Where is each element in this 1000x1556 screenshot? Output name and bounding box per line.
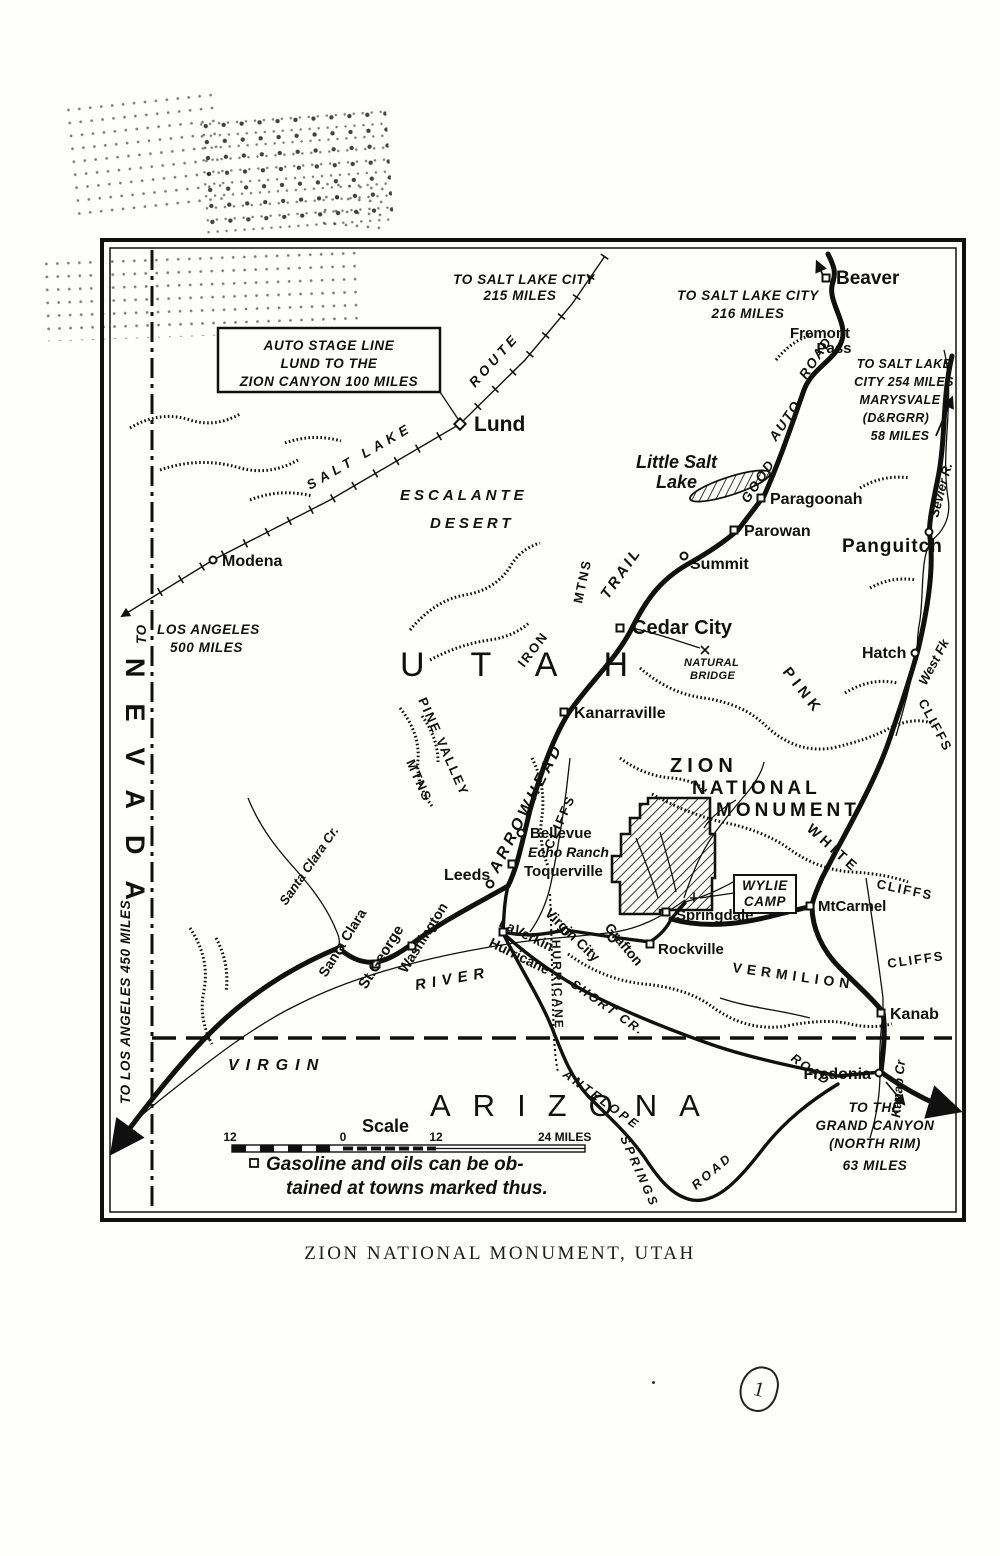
- river-label-virgin-2: RIVER: [414, 964, 492, 994]
- note-slc-216-1: TO SALT LAKE CITY: [677, 288, 820, 303]
- town-label-kanarraville: Kanarraville: [574, 705, 666, 722]
- monument-title-2: NATIONAL: [692, 778, 821, 799]
- town-label-hatch: Hatch: [862, 645, 906, 662]
- note-slc-254-2: CITY 254 MILES: [854, 375, 954, 389]
- town-label-mt-carmel: MtCarmel: [818, 898, 886, 915]
- illegible-stamp-marks: [318, 177, 389, 239]
- town-label-rockville: Rockville: [658, 941, 724, 958]
- note-slc-215-2: 215 MILES: [483, 288, 557, 303]
- note-grand-canyon-4: 63 MILES: [843, 1158, 908, 1173]
- note-slc-254-3: MARYSVALE: [860, 393, 941, 407]
- town-label-parowan: Parowan: [744, 523, 811, 540]
- scale-tick-0: 0: [340, 1130, 347, 1144]
- feature-vermilion-cliffs-2: CLIFFS: [886, 948, 945, 971]
- note-la-500-to: TO: [134, 624, 149, 644]
- town-label-cedar-city: Cedar City: [632, 617, 733, 639]
- monument-title-1: ZION: [670, 755, 738, 777]
- town-label-st-george: St.George: [355, 922, 407, 992]
- town-label-echo-ranch: Echo Ranch: [528, 844, 609, 860]
- note-la-450: TO LOS ANGELES 450 MILES: [118, 900, 133, 1104]
- map-frame: AUTO STAGE LINE LUND TO THE ZION CANYON …: [100, 238, 966, 1222]
- zion-monument-boundary: [612, 798, 715, 914]
- feature-gray-cliffs: CLIFFS: [541, 793, 578, 852]
- town-label-springdale: Springdale: [676, 907, 754, 924]
- state-label-arizona: ARIZONA: [430, 1088, 722, 1123]
- town-label-santa-clara: Santa Clara: [315, 906, 370, 980]
- note-slc-216-2: 216 MILES: [711, 306, 785, 321]
- note-la-500-2: 500 MILES: [170, 640, 243, 655]
- town-label-toquerville: Toquerville: [524, 863, 603, 880]
- feature-white-cliffs-1: WHITE: [804, 820, 863, 875]
- feature-hurricane-ledge: HURRICANE: [549, 940, 566, 1030]
- stray-ink-dot: [652, 1381, 655, 1384]
- auto-stage-line-box: AUTO STAGE LINE LUND TO THE ZION CANYON …: [218, 328, 460, 422]
- river-label-kanab-creek: Kanab Cr: [888, 1058, 908, 1118]
- town-label-fredonia: Fredonia: [803, 1066, 871, 1083]
- town-label-fremont-pass-2: Pass: [816, 340, 851, 357]
- town-label-leeds: Leeds: [444, 867, 490, 884]
- feature-natural-bridge-2: BRIDGE: [690, 670, 735, 682]
- town-label-grafton: Grafton: [602, 920, 647, 969]
- town-label-kanab: Kanab: [890, 1006, 939, 1023]
- note-slc-254-4: (D&RGRR): [863, 411, 929, 425]
- feature-little-salt-lake-1: Little Salt: [636, 452, 718, 472]
- page-number-value: 1: [751, 1376, 767, 1403]
- town-label-lund: Lund: [474, 413, 525, 436]
- railroad-salt-lake-route: [122, 256, 605, 616]
- zion-map: AUTO STAGE LINE LUND TO THE ZION CANYON …: [100, 238, 966, 1222]
- scale-tick-12-left: 12: [223, 1130, 237, 1144]
- feature-trail: TRAIL: [597, 544, 645, 602]
- state-label-nevada: NEVADA: [120, 658, 150, 926]
- note-slc-254-5: 58 MILES: [871, 429, 930, 443]
- scanned-map-page: AUTO STAGE LINE LUND TO THE ZION CANYON …: [0, 0, 1000, 1556]
- river-label-sevier: Sevier R.: [926, 461, 955, 519]
- wylie-camp-1: WYLIE: [742, 878, 788, 893]
- feature-pine-valley-2: MTNS: [403, 757, 435, 804]
- feature-escalante: ESCALANTE: [400, 487, 528, 504]
- scale-tick-24-miles: 24 MILES: [538, 1130, 591, 1144]
- note-grand-canyon-3: (NORTH RIM): [829, 1136, 921, 1151]
- scale-tick-12-right: 12: [429, 1130, 443, 1144]
- feature-pink-cliffs-2: CLIFFS: [915, 696, 955, 754]
- feature-little-salt-lake-2: Lake: [656, 472, 697, 492]
- gasoline-note: Gasoline and oils can be ob- tained at t…: [250, 1154, 548, 1199]
- monument-title-3: MONUMENT: [716, 800, 860, 821]
- note-la-500-1: LOS ANGELES: [157, 622, 260, 637]
- feature-pink-cliffs-1: PINK: [779, 664, 827, 718]
- page-number: 1: [735, 1362, 783, 1416]
- note-slc-254-1: TO SALT LAKE: [857, 357, 952, 371]
- auto-stage-line-2: LUND TO THE: [280, 356, 377, 371]
- town-label-panguitch: Panguitch: [842, 536, 943, 557]
- river-label-virgin-1: VIRGIN: [228, 1057, 325, 1074]
- note-grand-canyon-2: GRAND CANYON: [816, 1118, 935, 1133]
- auto-stage-line-1: AUTO STAGE LINE: [263, 338, 395, 353]
- feature-salt-lake-route-2: ROUTE: [466, 330, 522, 390]
- road-label-short-creek-1: SHORT CR.: [568, 977, 647, 1038]
- figure-caption: ZION NATIONAL MONUMENT, UTAH: [0, 1243, 1000, 1265]
- gasoline-note-line-2: tained at towns marked thus.: [286, 1178, 548, 1199]
- auto-stage-line-3: ZION CANYON 100 MILES: [239, 374, 418, 389]
- town-label-paragoonah: Paragoonah: [770, 491, 862, 508]
- river-label-santa-clara-creek: Santa Clara Cr.: [276, 823, 341, 907]
- feature-desert: DESERT: [430, 515, 515, 532]
- town-label-beaver: Beaver: [836, 268, 900, 289]
- feature-iron-mtns-2: MTNS: [570, 558, 594, 605]
- town-label-modena: Modena: [222, 553, 283, 570]
- feature-natural-bridge-1: NATURAL: [684, 657, 739, 669]
- town-label-summit: Summit: [690, 556, 749, 573]
- note-slc-215-1: TO SALT LAKE CITY: [453, 272, 596, 287]
- feature-salt-lake-route-1: SALT LAKE: [304, 420, 415, 493]
- scale-title: Scale: [362, 1116, 409, 1136]
- town-label-bellevue: Bellevue: [530, 825, 592, 842]
- gasoline-note-line-1: Gasoline and oils can be ob-: [266, 1154, 524, 1175]
